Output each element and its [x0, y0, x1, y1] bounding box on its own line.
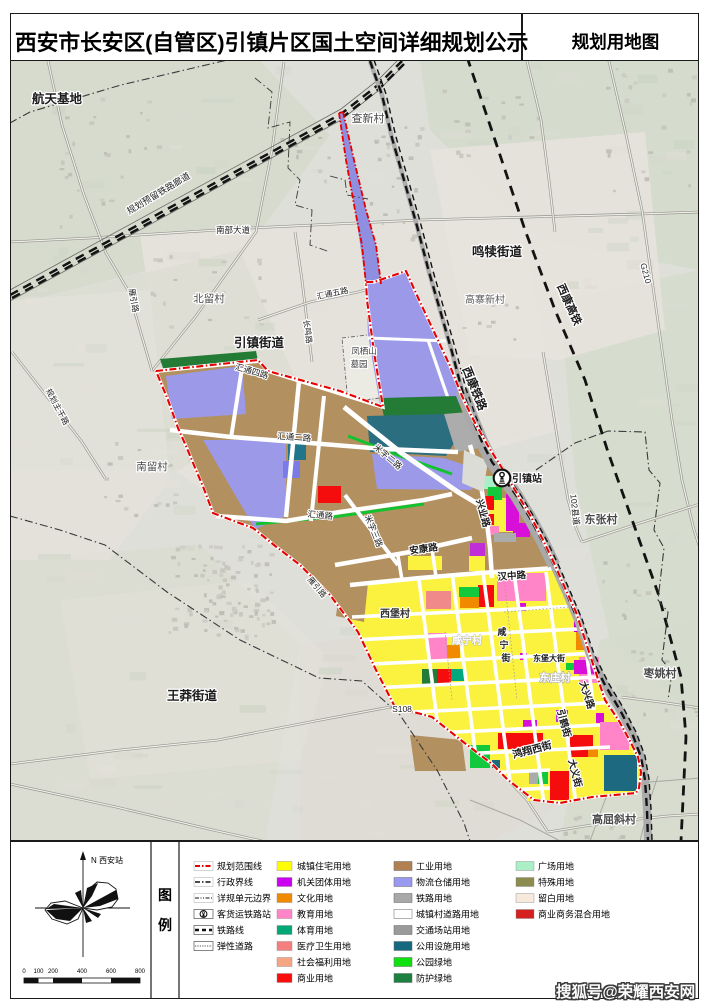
svg-text:社会福利用地: 社会福利用地 — [297, 957, 351, 968]
svg-text:留白用地: 留白用地 — [538, 893, 574, 904]
svg-text:铁路线: 铁路线 — [217, 925, 244, 936]
svg-text:城镇村道路用地: 城镇村道路用地 — [416, 909, 479, 920]
svg-text:0: 0 — [22, 969, 26, 975]
svg-text:工业用地: 工业用地 — [416, 861, 452, 872]
svg-text:N 西安站: N 西安站 — [91, 855, 123, 865]
svg-text:公园绿地: 公园绿地 — [416, 957, 452, 968]
svg-text:体育用地: 体育用地 — [297, 925, 333, 936]
svg-text:800: 800 — [135, 969, 146, 975]
svg-text:防护绿地: 防护绿地 — [416, 973, 452, 984]
svg-text:城镇住宅用地: 城镇住宅用地 — [297, 861, 351, 872]
svg-text:400: 400 — [77, 969, 88, 975]
svg-text:文化用地: 文化用地 — [297, 893, 333, 904]
svg-text:行政界线: 行政界线 — [217, 877, 253, 888]
svg-text:机关团体用地: 机关团体用地 — [297, 877, 351, 888]
svg-text:物流仓储用地: 物流仓储用地 — [416, 877, 470, 888]
svg-text:商业用地: 商业用地 — [297, 973, 333, 984]
svg-text:弹性道路: 弹性道路 — [217, 941, 253, 952]
svg-text:医疗卫生用地: 医疗卫生用地 — [297, 941, 351, 952]
svg-text:规划范围线: 规划范围线 — [217, 861, 262, 872]
svg-text:铁路用地: 铁路用地 — [416, 893, 452, 904]
svg-text:教育用地: 教育用地 — [297, 909, 333, 920]
svg-text:公用设施用地: 公用设施用地 — [416, 941, 470, 952]
svg-text:600: 600 — [106, 969, 117, 975]
svg-text:交通场站用地: 交通场站用地 — [416, 925, 470, 936]
svg-text:例: 例 — [158, 917, 172, 933]
svg-text:商业商务混合用地: 商业商务混合用地 — [538, 909, 610, 920]
svg-text:广场用地: 广场用地 — [538, 861, 574, 872]
svg-text:特殊用地: 特殊用地 — [538, 877, 574, 888]
svg-text:200: 200 — [48, 969, 59, 975]
svg-text:详规单元边界: 详规单元边界 — [217, 893, 271, 904]
svg-text:100: 100 — [33, 969, 44, 975]
svg-text:图: 图 — [158, 887, 172, 903]
svg-text:客货运铁路站: 客货运铁路站 — [217, 909, 271, 920]
